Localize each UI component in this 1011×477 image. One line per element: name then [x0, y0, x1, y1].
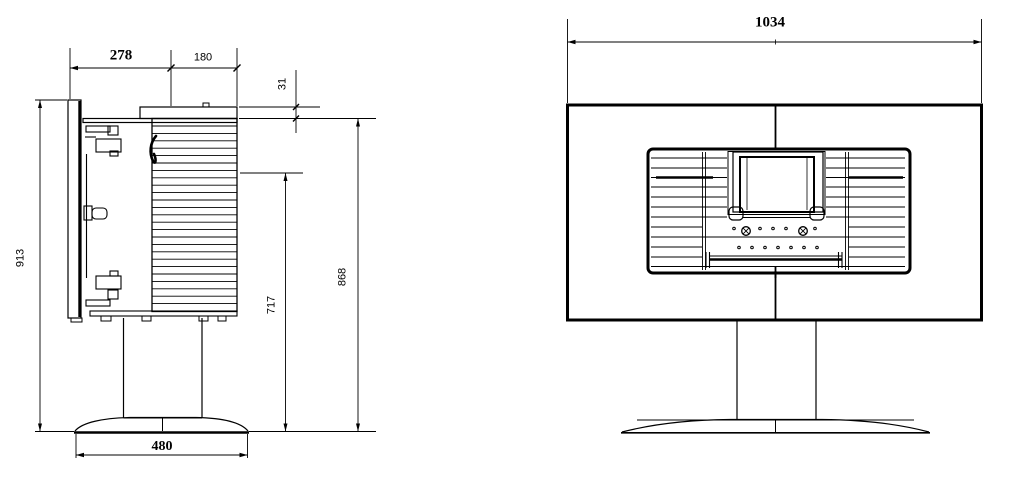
front-view: [568, 19, 982, 433]
dim-label-base-diameter: 480: [152, 440, 173, 454]
front-dimensions: [568, 19, 982, 103]
dim-label-height-overall: 913: [16, 249, 27, 267]
stand-column-side: [124, 318, 203, 418]
vesa-plate: [728, 152, 825, 221]
cap-plate: [83, 103, 237, 321]
dim-label-depth-overall: 278: [110, 49, 133, 64]
stand-base-front: [621, 420, 930, 433]
dim-label-depth-fins: 180: [194, 53, 212, 64]
side-mount-bracket-top: [85, 126, 121, 156]
dim-label-cap-thickness: 31: [278, 78, 289, 90]
side-mount-knob: [84, 206, 107, 220]
drawing-linework: [0, 0, 1011, 477]
screw-left: [742, 227, 751, 236]
side-view: [35, 48, 376, 458]
side-mount-bracket-bottom: [86, 271, 121, 306]
stand-column-front: [737, 321, 816, 420]
dim-label-width-overall: 1034: [755, 16, 785, 31]
screw-right: [799, 227, 808, 236]
stand-base-side: [74, 418, 249, 433]
heatsink-fins-side: [152, 119, 237, 312]
dim-label-height-pivot: 717: [267, 296, 278, 314]
dim-label-height-fins-top: 868: [338, 268, 349, 286]
technical-drawing: 278 180 31 913 717 868 480 1034: [0, 0, 1011, 477]
